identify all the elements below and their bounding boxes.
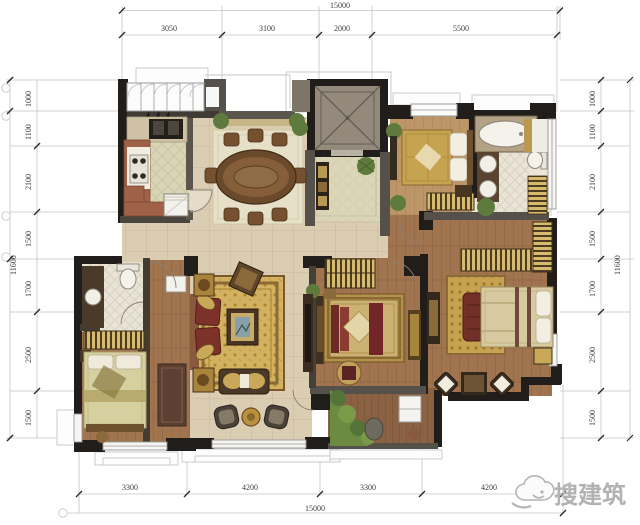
svg-text:1700: 1700 (24, 281, 33, 297)
svg-text:11600: 11600 (9, 255, 18, 275)
svg-text:1500: 1500 (588, 231, 597, 247)
svg-text:2100: 2100 (24, 174, 33, 190)
svg-text:2500: 2500 (24, 347, 33, 363)
svg-text:1000: 1000 (24, 91, 33, 107)
svg-text:15000: 15000 (330, 1, 350, 10)
svg-text:11600: 11600 (613, 255, 622, 275)
svg-text:3100: 3100 (259, 24, 275, 33)
svg-text:5500: 5500 (453, 24, 469, 33)
svg-text:3300: 3300 (122, 483, 138, 492)
svg-text:1700: 1700 (588, 281, 597, 297)
svg-text:3050: 3050 (161, 24, 177, 33)
svg-text:2000: 2000 (334, 24, 350, 33)
svg-text:1500: 1500 (588, 410, 597, 426)
svg-text:1500: 1500 (24, 410, 33, 426)
svg-text:1500: 1500 (24, 231, 33, 247)
svg-text:搜建筑: 搜建筑 (554, 481, 626, 509)
svg-text:4200: 4200 (242, 483, 258, 492)
svg-text:1000: 1000 (588, 91, 597, 107)
svg-text:1100: 1100 (24, 124, 33, 140)
svg-text:3300: 3300 (360, 483, 376, 492)
svg-text:1100: 1100 (588, 124, 597, 140)
svg-text:15000: 15000 (305, 504, 325, 513)
svg-text:4200: 4200 (481, 483, 497, 492)
svg-text:2100: 2100 (588, 174, 597, 190)
svg-text:2500: 2500 (588, 347, 597, 363)
